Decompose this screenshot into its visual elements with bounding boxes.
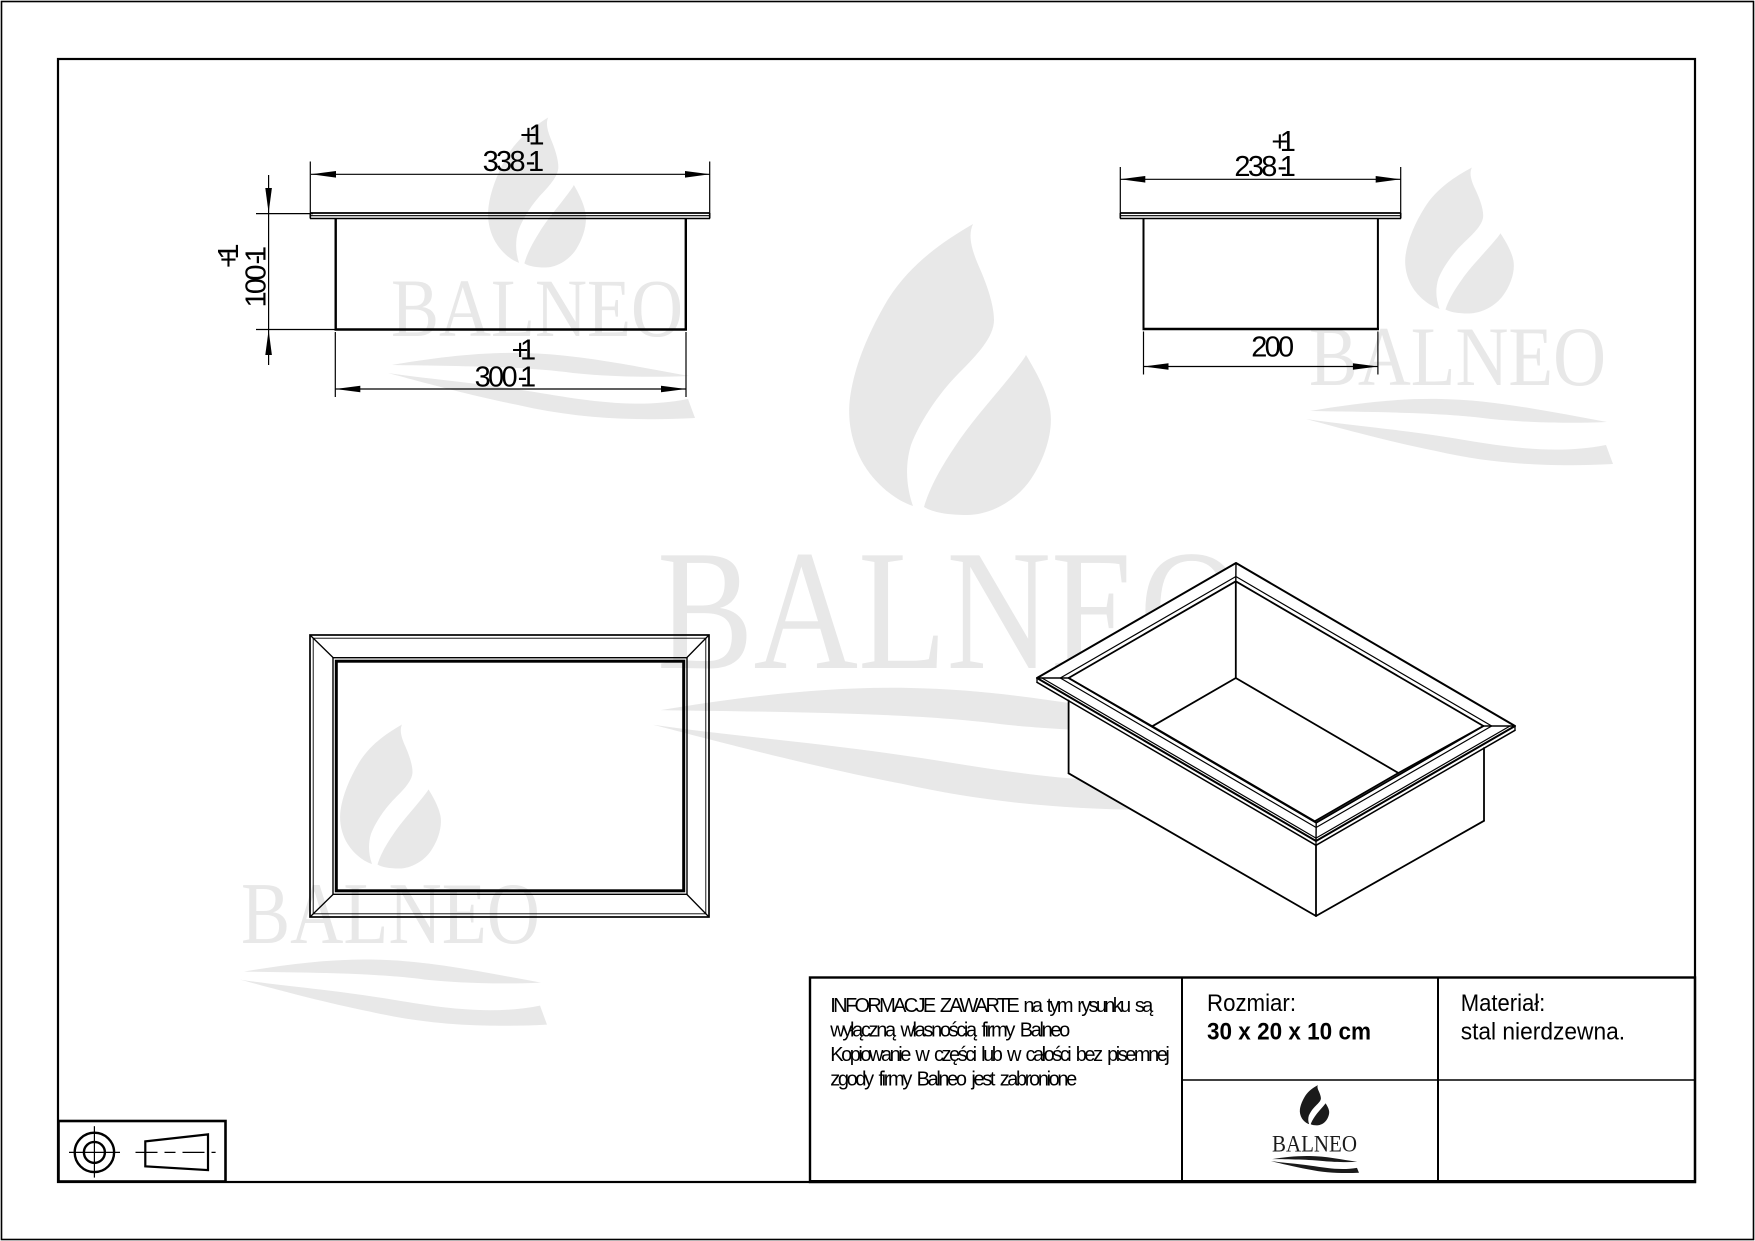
svg-text:BALNEO: BALNEO (1272, 1132, 1357, 1158)
svg-text:BALNEO: BALNEO (241, 866, 540, 963)
svg-text:30 x 20 x 10 cm: 30 x 20 x 10 cm (1207, 1019, 1371, 1046)
svg-text:BALNEO: BALNEO (1309, 310, 1606, 404)
svg-text:Materiał:: Materiał: (1461, 990, 1546, 1017)
svg-text:Rozmiar:: Rozmiar: (1207, 990, 1296, 1017)
svg-text:BALNEO: BALNEO (391, 262, 683, 354)
svg-text:200: 200 (1251, 332, 1294, 364)
svg-text:Kopiowanie w części lub w cało: Kopiowanie w części lub w całości bez pi… (830, 1044, 1169, 1066)
svg-text:zgody firmy Balneo jest zabron: zgody firmy Balneo jest zabronione (830, 1068, 1077, 1090)
svg-text:+1: +1 (1271, 126, 1296, 158)
svg-text:INFORMACJE ZAWARTE na tym rysu: INFORMACJE ZAWARTE na tym rysunku są (830, 995, 1154, 1017)
svg-text:100: 100 (241, 265, 273, 308)
svg-text:+1: +1 (512, 335, 536, 367)
svg-text:+1: +1 (213, 244, 245, 269)
svg-text:+1: +1 (520, 119, 545, 151)
svg-text:wyłączną własnością firmy Baln: wyłączną własnością firmy Balneo (829, 1019, 1070, 1041)
svg-text:-1: -1 (241, 246, 273, 265)
svg-text:stal nierdzewna.: stal nierdzewna. (1461, 1019, 1625, 1046)
